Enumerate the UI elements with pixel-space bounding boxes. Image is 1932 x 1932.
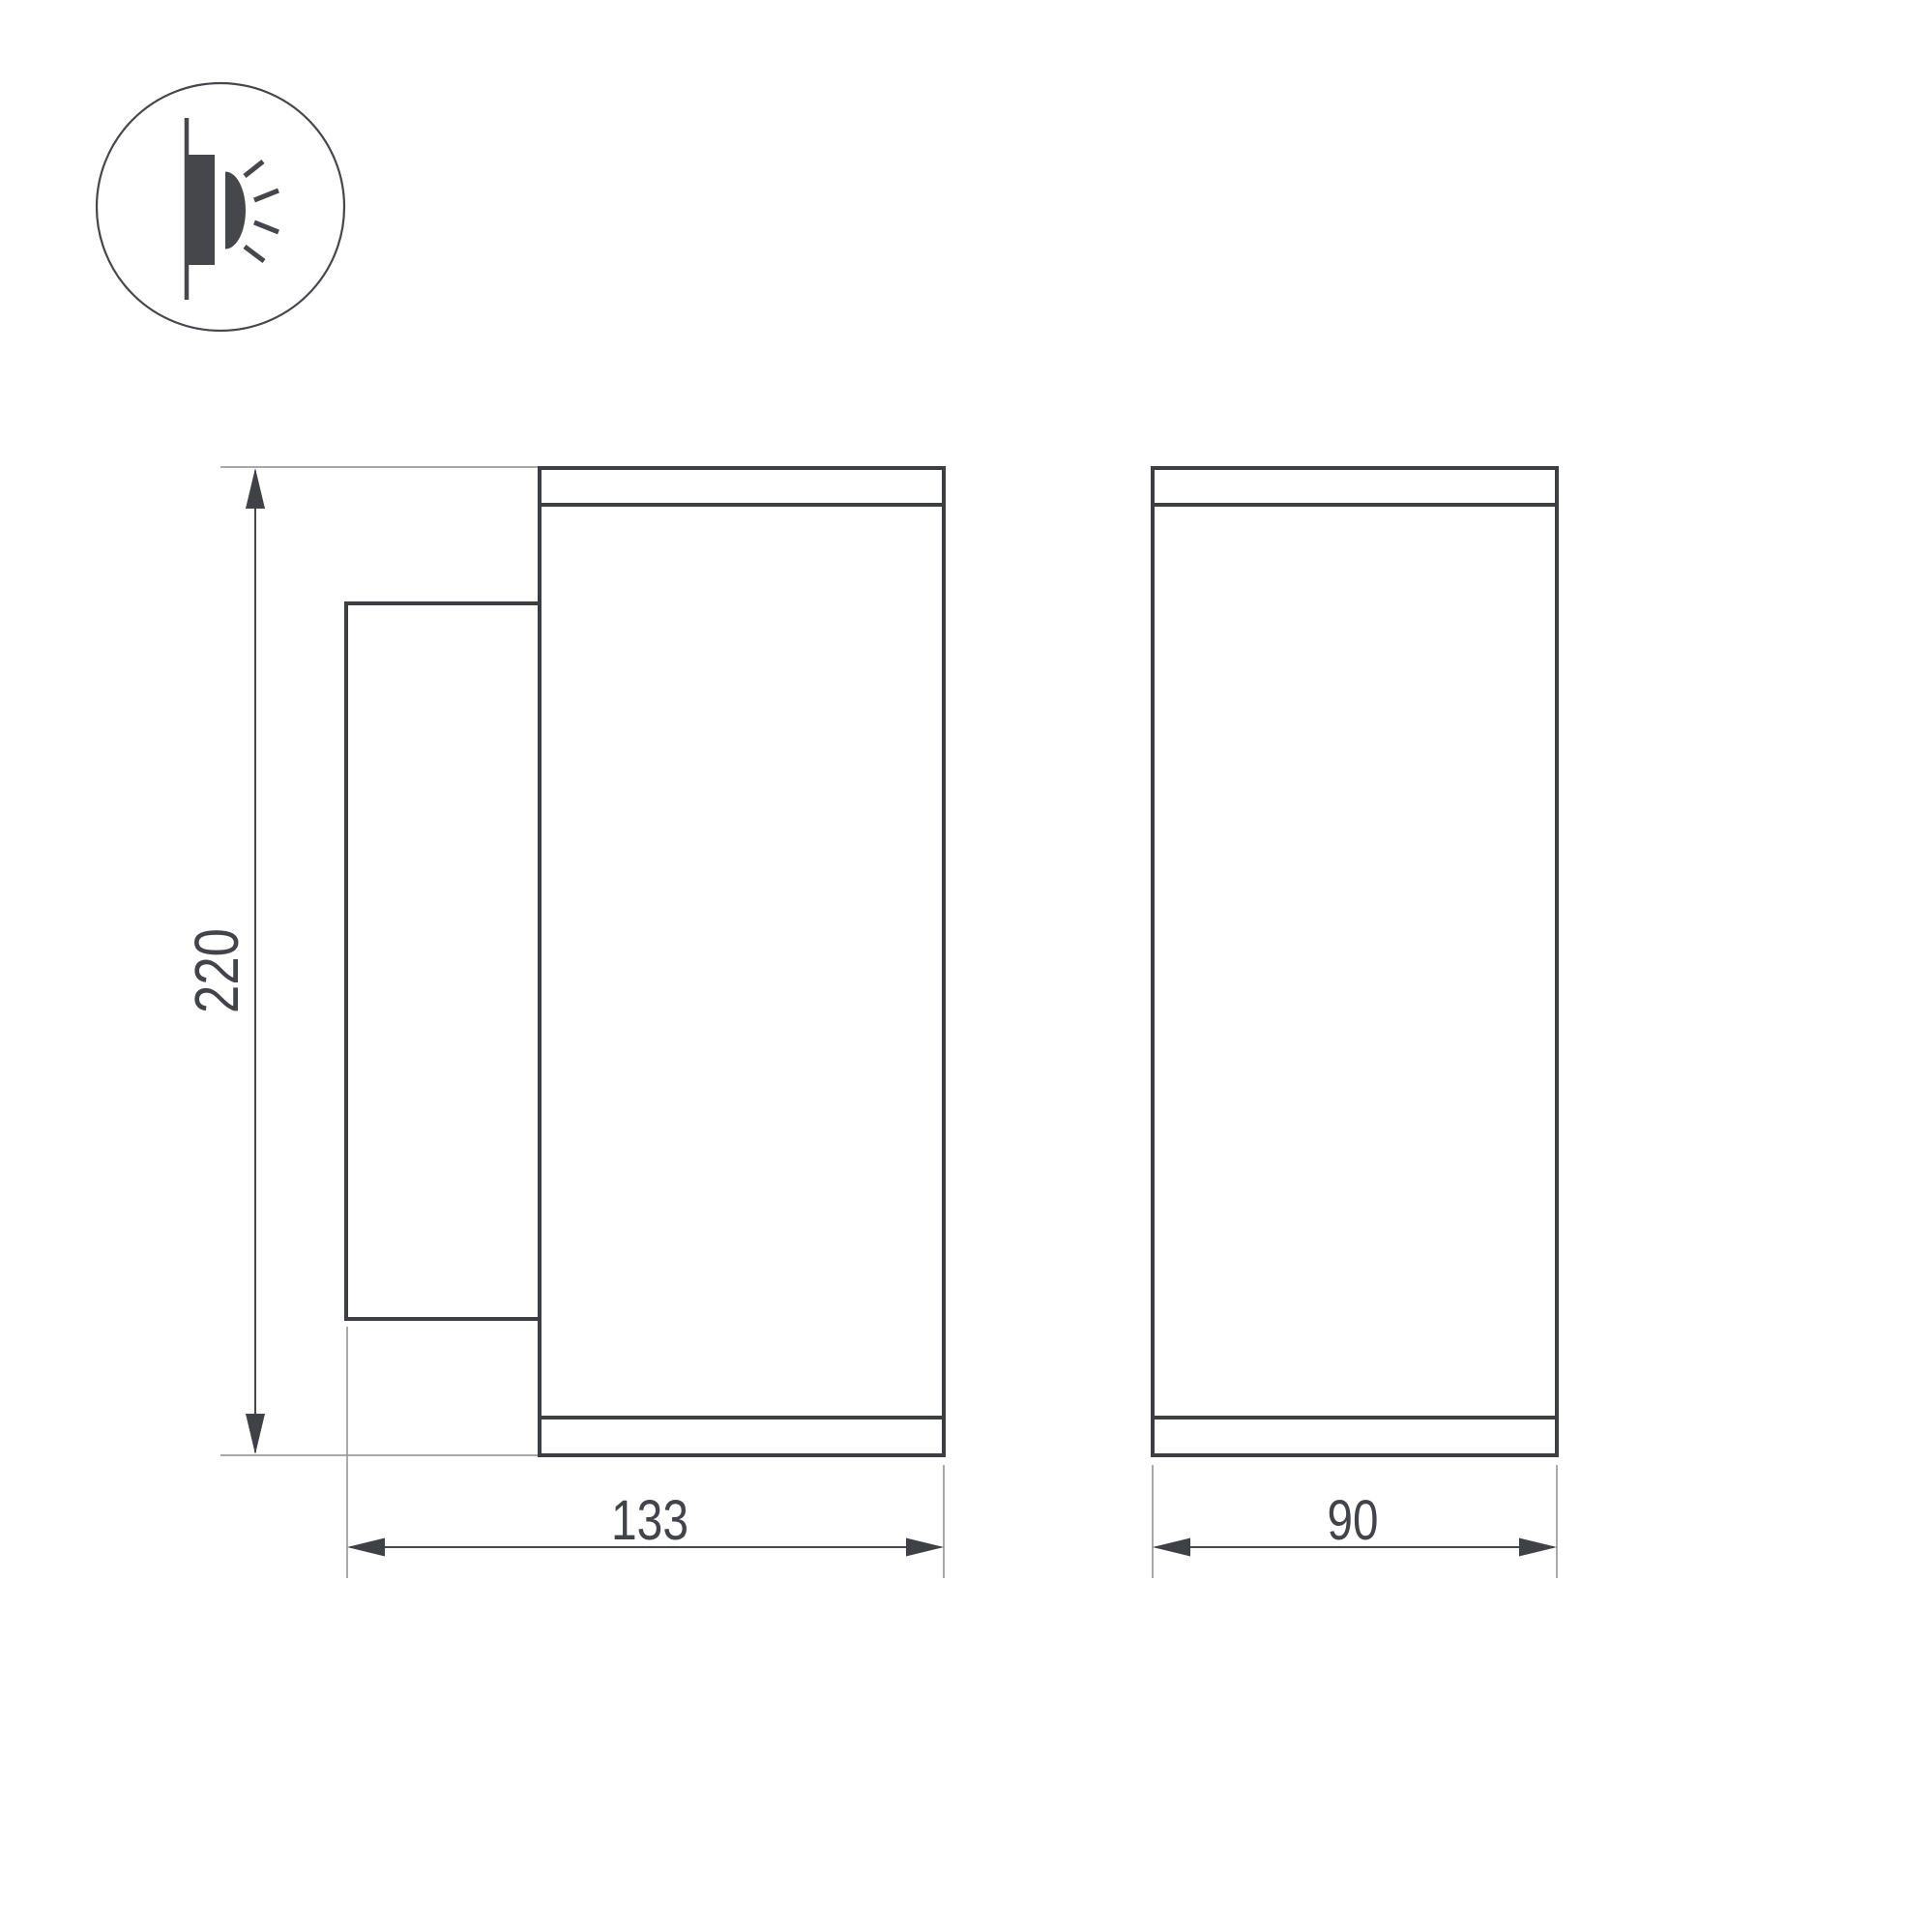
icon-lamp-lens [225,172,246,249]
icon-circle [97,83,344,331]
height-arrow-down [246,1414,265,1454]
side-width-dimension: 133 [347,1327,944,1578]
technical-drawing-canvas: 220 133 90 [0,0,1932,1932]
front-width-dimension: 90 [1153,1465,1557,1578]
height-dimension-value: 220 [182,928,251,1013]
height-dimension: 220 [182,467,538,1455]
front-width-dimension-value: 90 [1328,1489,1379,1552]
height-arrow-up [246,468,265,509]
side-width-arrow-left [347,1538,385,1557]
front-view [1153,468,1557,1455]
side-view [346,468,944,1455]
front-width-arrow-right [1519,1538,1557,1557]
icon-light-rays [245,161,278,261]
side-width-arrow-right [906,1538,944,1557]
dimension-drawing: 220 133 90 [0,0,1932,1932]
side-view-wall-plate [346,603,540,1319]
side-view-body [540,468,944,1455]
front-view-body [1153,468,1557,1455]
front-width-arrow-left [1153,1538,1190,1557]
side-width-dimension-value: 133 [611,1489,688,1552]
icon-mount-body [187,155,215,265]
wall-light-icon [97,83,344,331]
